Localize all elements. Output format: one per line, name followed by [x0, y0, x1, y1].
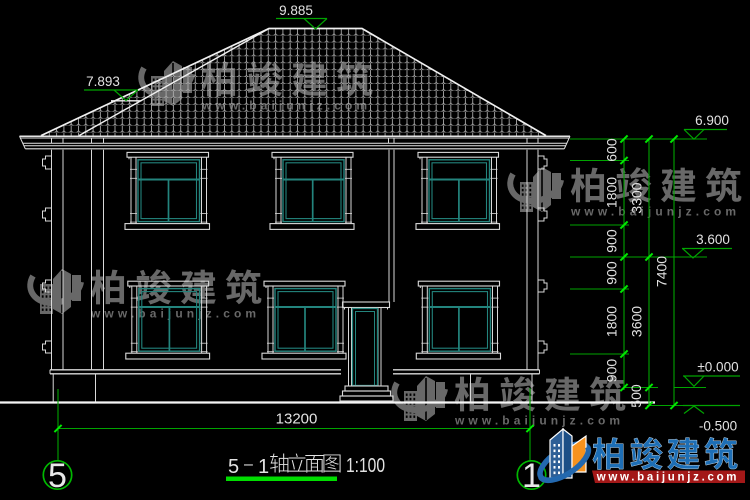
svg-text:1:100: 1:100 — [346, 455, 385, 477]
svg-text:6.900: 6.900 — [695, 113, 729, 128]
svg-text:3.600: 3.600 — [696, 232, 730, 247]
svg-text:1800: 1800 — [604, 177, 620, 208]
svg-text:7400: 7400 — [654, 256, 670, 287]
svg-text:5: 5 — [228, 456, 239, 478]
svg-text:-0.500: -0.500 — [699, 419, 737, 434]
svg-text:600: 600 — [604, 138, 620, 162]
svg-text:7.893: 7.893 — [86, 74, 120, 89]
svg-text:900: 900 — [604, 359, 620, 383]
svg-text:13200: 13200 — [276, 411, 318, 428]
svg-text:5: 5 — [48, 457, 67, 495]
svg-text:500: 500 — [628, 384, 644, 408]
svg-text:–: – — [244, 456, 253, 473]
svg-text:900: 900 — [604, 229, 620, 253]
svg-text:3600: 3600 — [629, 306, 645, 337]
svg-text:1800: 1800 — [604, 306, 620, 337]
svg-text:900: 900 — [604, 261, 620, 285]
svg-text:3300: 3300 — [629, 182, 645, 213]
svg-text:www.baijunjz.com: www.baijunjz.com — [596, 472, 739, 484]
svg-text:9.885: 9.885 — [279, 3, 313, 18]
svg-text:±0.000: ±0.000 — [697, 360, 738, 375]
svg-text:1: 1 — [258, 456, 269, 478]
